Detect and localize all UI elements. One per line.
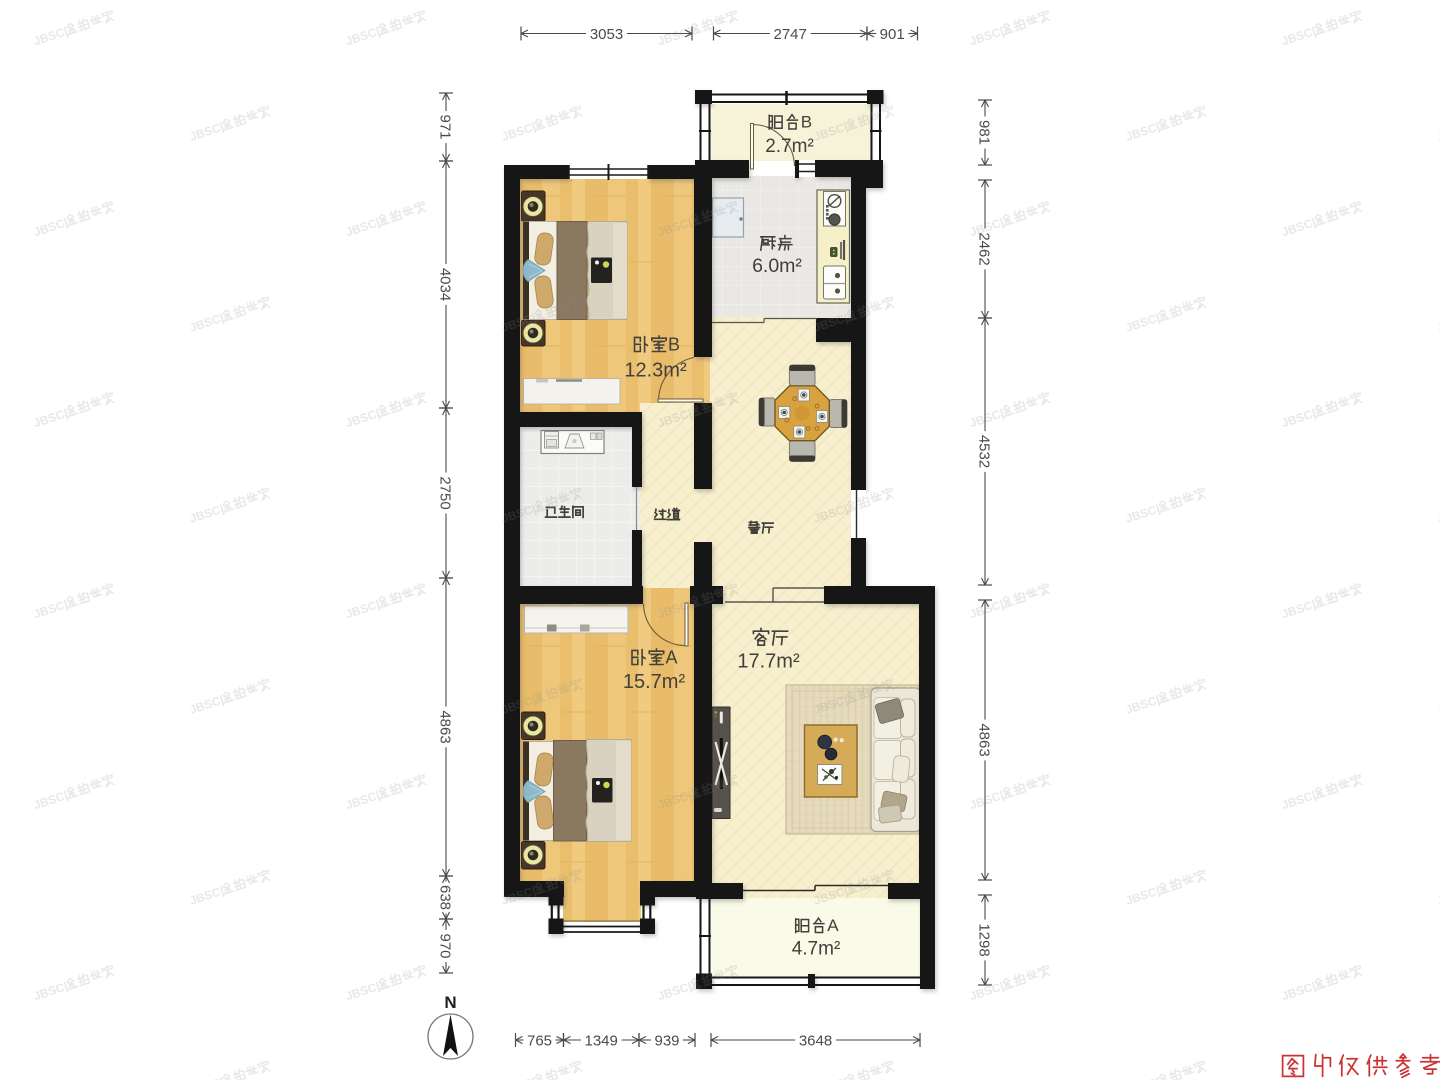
svg-text:JBSC|: JBSC|	[968, 406, 1006, 430]
svg-text:JBSC|: JBSC|	[968, 597, 1006, 621]
svg-text:17.7m²: 17.7m²	[737, 651, 800, 673]
svg-text:JBSC|: JBSC|	[1124, 884, 1162, 908]
svg-text:JBSC|: JBSC|	[344, 406, 382, 430]
svg-text:JBSC|: JBSC|	[968, 24, 1006, 48]
svg-text:JBSC|: JBSC|	[188, 502, 226, 526]
svg-text:1298: 1298	[976, 923, 993, 956]
svg-text:JBSC|: JBSC|	[344, 597, 382, 621]
svg-text:JBSC|: JBSC|	[1280, 215, 1318, 239]
svg-text:JBSC|: JBSC|	[344, 788, 382, 812]
svg-text:JBSC|: JBSC|	[1436, 1075, 1440, 1080]
svg-text:3053: 3053	[590, 26, 623, 43]
svg-text:A: A	[666, 647, 678, 667]
svg-text:1349: 1349	[585, 1032, 618, 1049]
svg-text:JBSC|: JBSC|	[344, 24, 382, 48]
svg-text:JBSC|: JBSC|	[656, 24, 694, 48]
svg-text:JBSC|: JBSC|	[656, 979, 694, 1003]
svg-text:JBSC|: JBSC|	[188, 1075, 226, 1080]
svg-text:765: 765	[527, 1032, 552, 1049]
svg-text:6.0m²: 6.0m²	[752, 255, 802, 277]
svg-text:4863: 4863	[437, 710, 454, 743]
svg-text:970: 970	[437, 933, 454, 958]
svg-text:JBSC|: JBSC|	[344, 215, 382, 239]
svg-text:JBSC|: JBSC|	[344, 979, 382, 1003]
svg-text:3648: 3648	[799, 1032, 832, 1049]
svg-text:JBSC|: JBSC|	[1124, 120, 1162, 144]
svg-text:JBSC|: JBSC|	[1280, 406, 1318, 430]
svg-text:JBSC|: JBSC|	[968, 788, 1006, 812]
svg-text:B: B	[801, 113, 812, 132]
svg-text:JBSC|: JBSC|	[188, 311, 226, 335]
svg-text:JBSC|: JBSC|	[32, 215, 70, 239]
svg-text:JBSC|: JBSC|	[32, 597, 70, 621]
svg-text:971: 971	[437, 114, 454, 139]
svg-text:15.7m²: 15.7m²	[623, 671, 686, 693]
svg-text:JBSC|: JBSC|	[1280, 979, 1318, 1003]
svg-text:JBSC|: JBSC|	[1124, 311, 1162, 335]
svg-text:JBSC|: JBSC|	[32, 24, 70, 48]
svg-text:4.7m²: 4.7m²	[792, 939, 841, 960]
svg-text:JBSC|: JBSC|	[1280, 788, 1318, 812]
svg-text:JBSC|: JBSC|	[1436, 884, 1440, 908]
svg-text:12.3m²: 12.3m²	[624, 360, 687, 382]
svg-text:JBSC|: JBSC|	[1124, 502, 1162, 526]
svg-text:JBSC|: JBSC|	[1124, 1075, 1162, 1080]
svg-text:981: 981	[976, 120, 993, 145]
svg-text:2.7m²: 2.7m²	[765, 136, 814, 157]
svg-text:638: 638	[437, 885, 454, 910]
svg-text:JBSC|: JBSC|	[500, 120, 538, 144]
svg-text:939: 939	[654, 1032, 679, 1049]
svg-text:JBSC|: JBSC|	[32, 788, 70, 812]
svg-text:JBSC|: JBSC|	[188, 884, 226, 908]
svg-text:B: B	[668, 334, 680, 354]
svg-text:4034: 4034	[437, 268, 454, 301]
svg-text:JBSC|: JBSC|	[188, 120, 226, 144]
svg-text:JBSC|: JBSC|	[1280, 24, 1318, 48]
svg-text:901: 901	[880, 26, 905, 43]
svg-text:JBSC|: JBSC|	[812, 1075, 850, 1080]
svg-text:JBSC|: JBSC|	[1124, 693, 1162, 717]
svg-text:JBSC|: JBSC|	[1436, 502, 1440, 526]
svg-text:JBSC|: JBSC|	[188, 693, 226, 717]
svg-text:2750: 2750	[437, 476, 454, 509]
svg-text:JBSC|: JBSC|	[32, 406, 70, 430]
svg-text:2747: 2747	[774, 26, 807, 43]
svg-text:JBSC|: JBSC|	[500, 1075, 538, 1080]
svg-text:4532: 4532	[976, 435, 993, 468]
svg-text:JBSC|: JBSC|	[1436, 693, 1440, 717]
svg-text:JBSC|: JBSC|	[1280, 597, 1318, 621]
svg-text:N: N	[444, 993, 456, 1012]
svg-text:A: A	[827, 916, 839, 935]
svg-text:JBSC|: JBSC|	[1436, 311, 1440, 335]
svg-text:JBSC|: JBSC|	[1436, 120, 1440, 144]
svg-text:JBSC|: JBSC|	[32, 979, 70, 1003]
svg-text:4863: 4863	[976, 723, 993, 756]
